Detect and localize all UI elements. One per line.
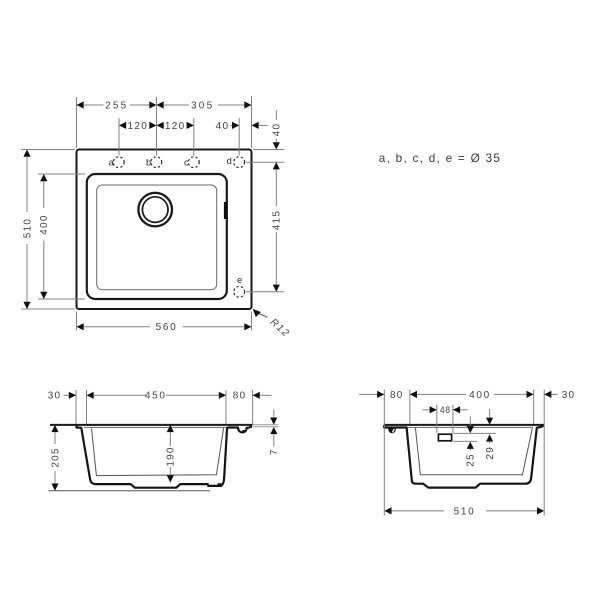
svg-text:48: 48 [440,405,451,415]
svg-text:510: 510 [454,506,476,517]
svg-text:450: 450 [145,391,167,402]
svg-text:305: 305 [191,100,214,111]
svg-text:415: 415 [272,210,283,231]
svg-text:40: 40 [272,123,283,137]
svg-text:29: 29 [485,446,496,460]
svg-text:120: 120 [165,121,186,132]
svg-text:7: 7 [269,449,280,455]
svg-text:d: d [227,156,232,166]
svg-text:560: 560 [156,322,178,333]
svg-text:30: 30 [562,390,576,401]
svg-text:205: 205 [50,447,61,467]
svg-text:b: b [146,157,151,167]
svg-text:120: 120 [128,121,149,132]
svg-text:400: 400 [39,214,50,235]
svg-text:400: 400 [469,390,491,401]
svg-text:e: e [237,275,242,285]
svg-text:30: 30 [48,391,62,402]
svg-text:25: 25 [466,453,477,467]
svg-text:80: 80 [390,390,404,401]
svg-text:80: 80 [233,391,247,402]
svg-text:510: 510 [22,218,33,239]
svg-text:40: 40 [216,121,230,132]
svg-text:c: c [184,157,189,167]
svg-text:a, b, c, d, e = Ø 35: a, b, c, d, e = Ø 35 [379,151,501,165]
svg-text:190: 190 [166,446,177,466]
svg-text:255: 255 [105,100,128,111]
svg-text:a: a [109,157,115,167]
